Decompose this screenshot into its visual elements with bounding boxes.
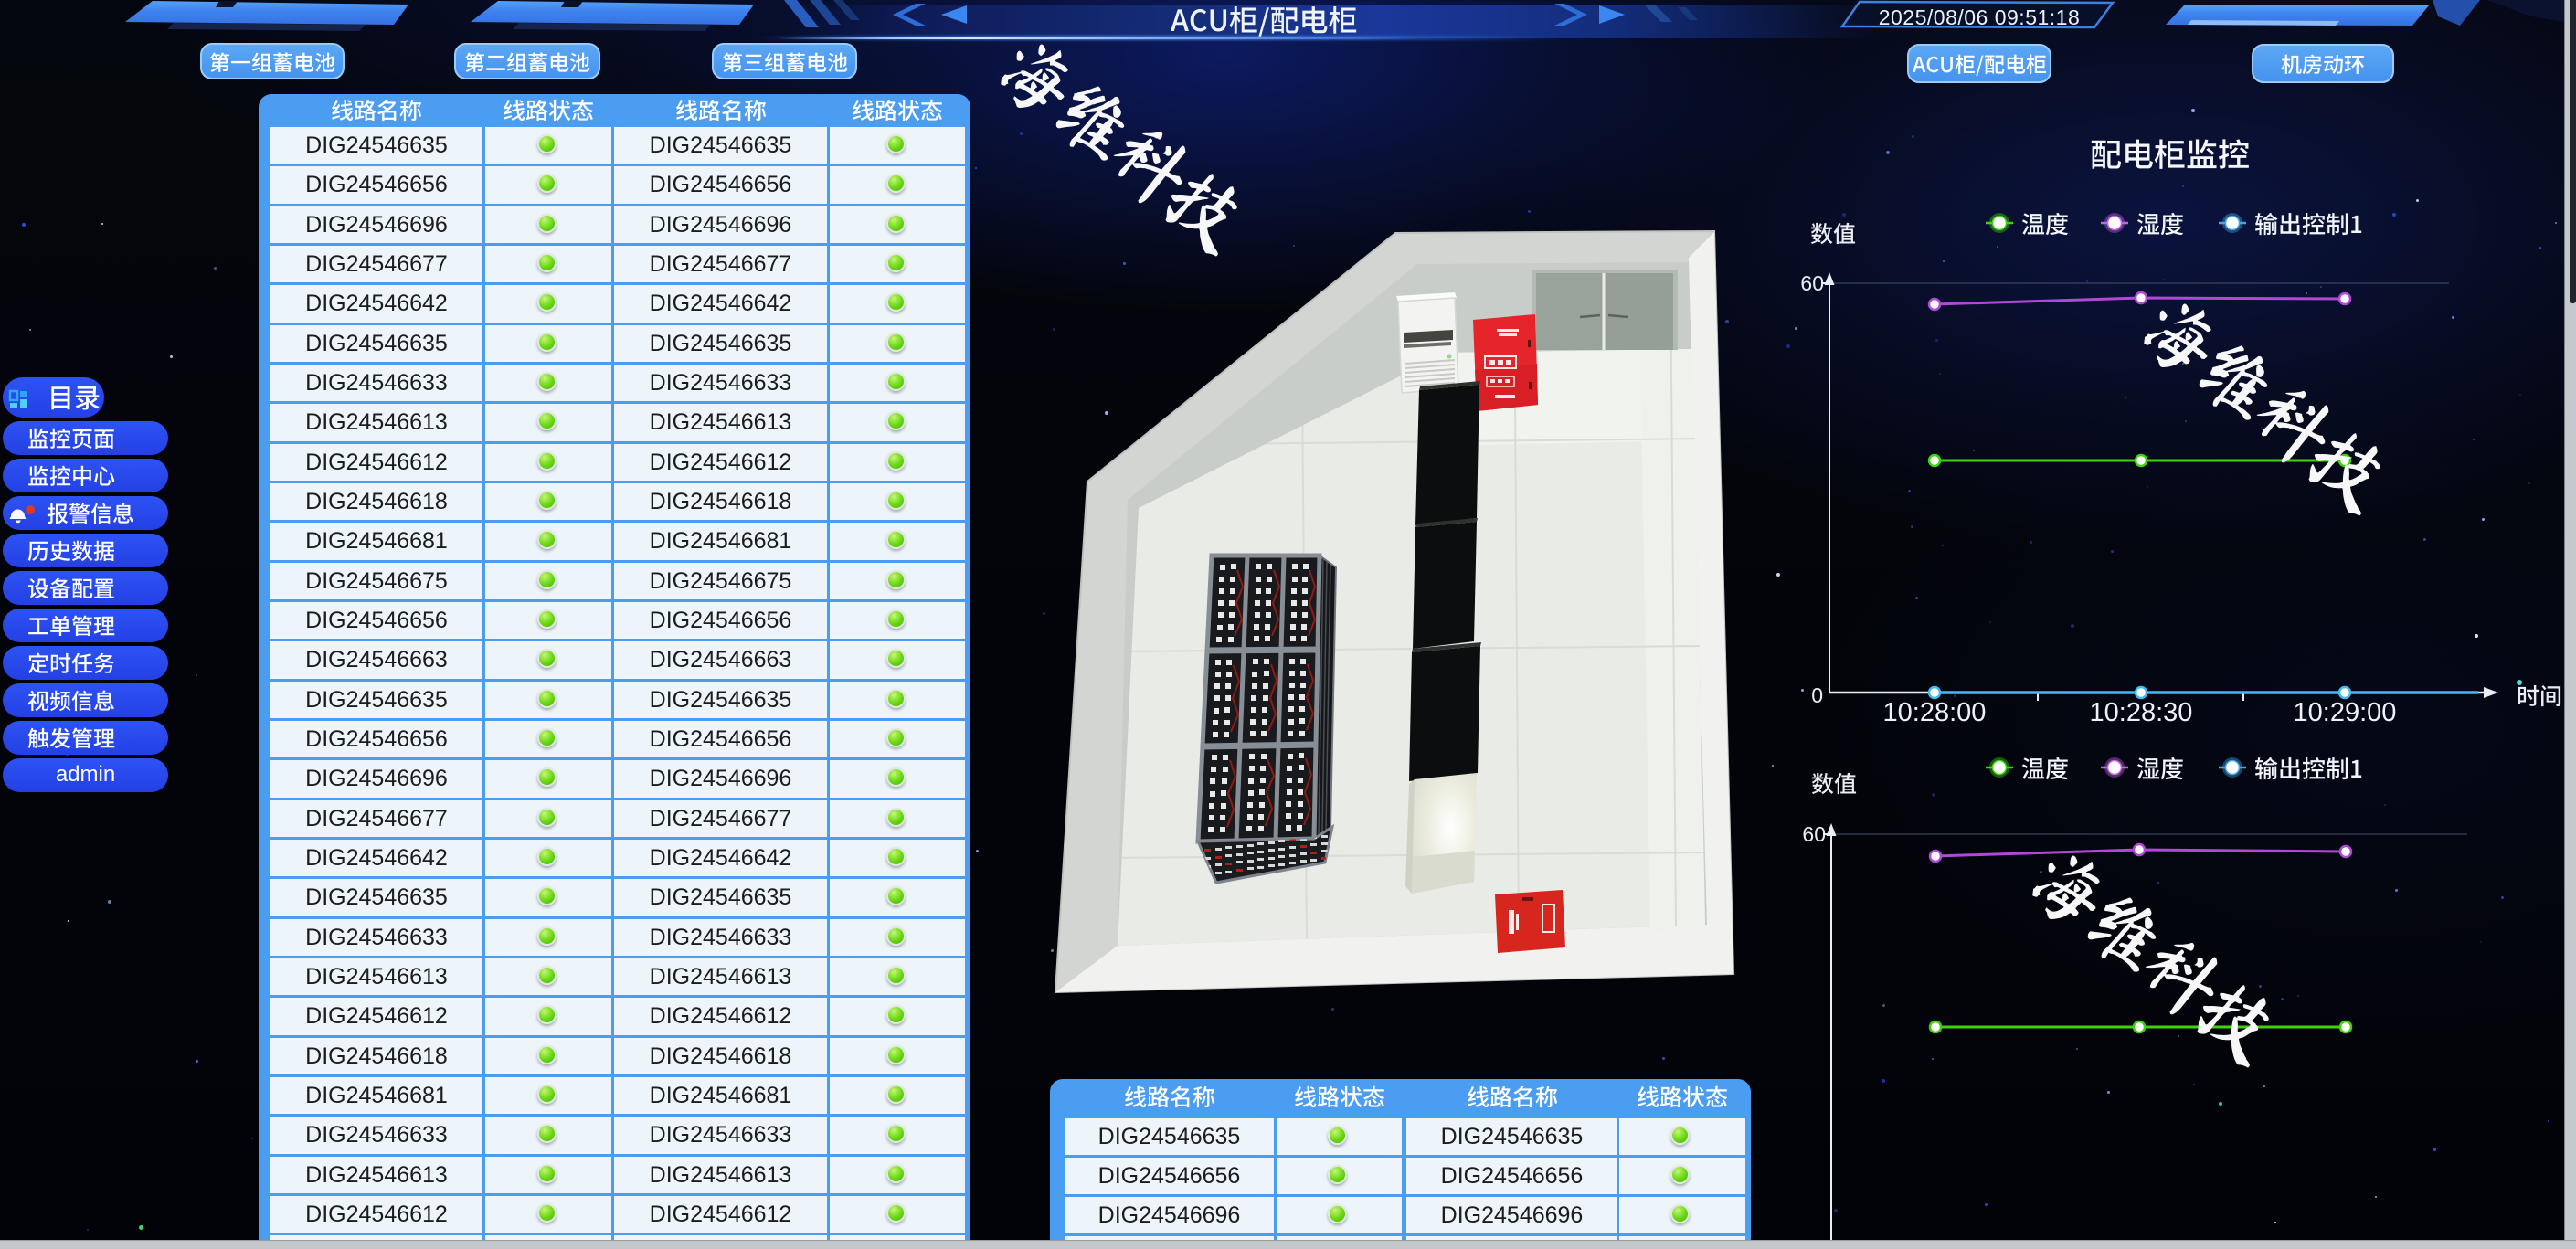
svg-text:10:29:00: 10:29:00 (2294, 698, 2397, 727)
svg-text:60: 60 (1802, 822, 1826, 846)
svg-text:10:28:00: 10:28:00 (1883, 698, 1987, 727)
svg-text:10:28:30: 10:28:30 (2090, 698, 2193, 727)
svg-text:0: 0 (1811, 683, 1823, 707)
svg-text:60: 60 (1800, 271, 1824, 295)
